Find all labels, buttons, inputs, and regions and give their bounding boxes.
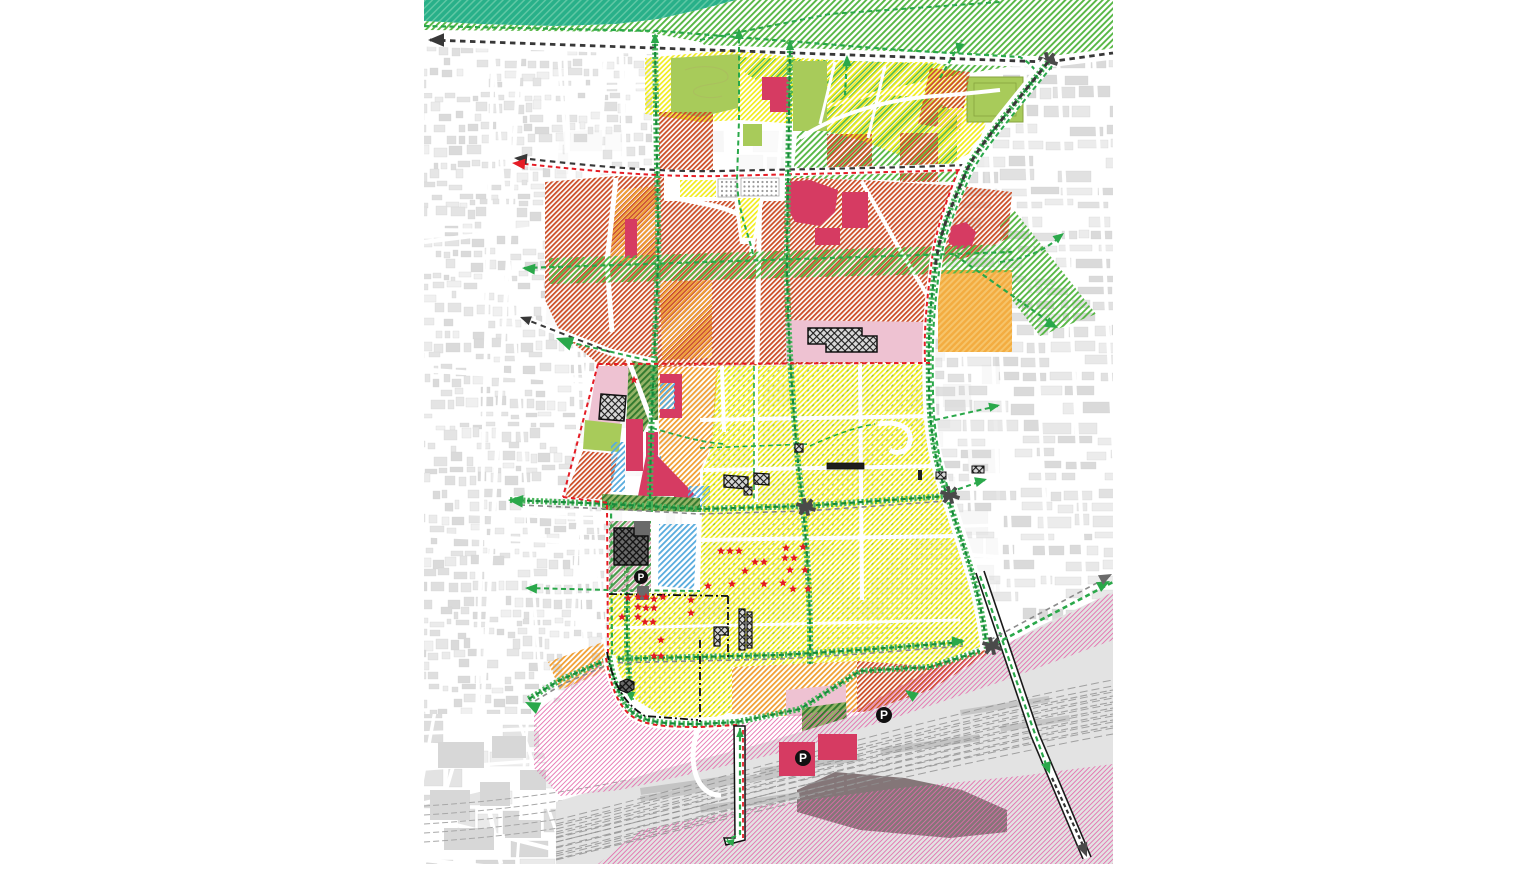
svg-text:P: P	[880, 708, 888, 722]
svg-text:P: P	[799, 751, 807, 765]
svg-text:P: P	[638, 573, 645, 584]
